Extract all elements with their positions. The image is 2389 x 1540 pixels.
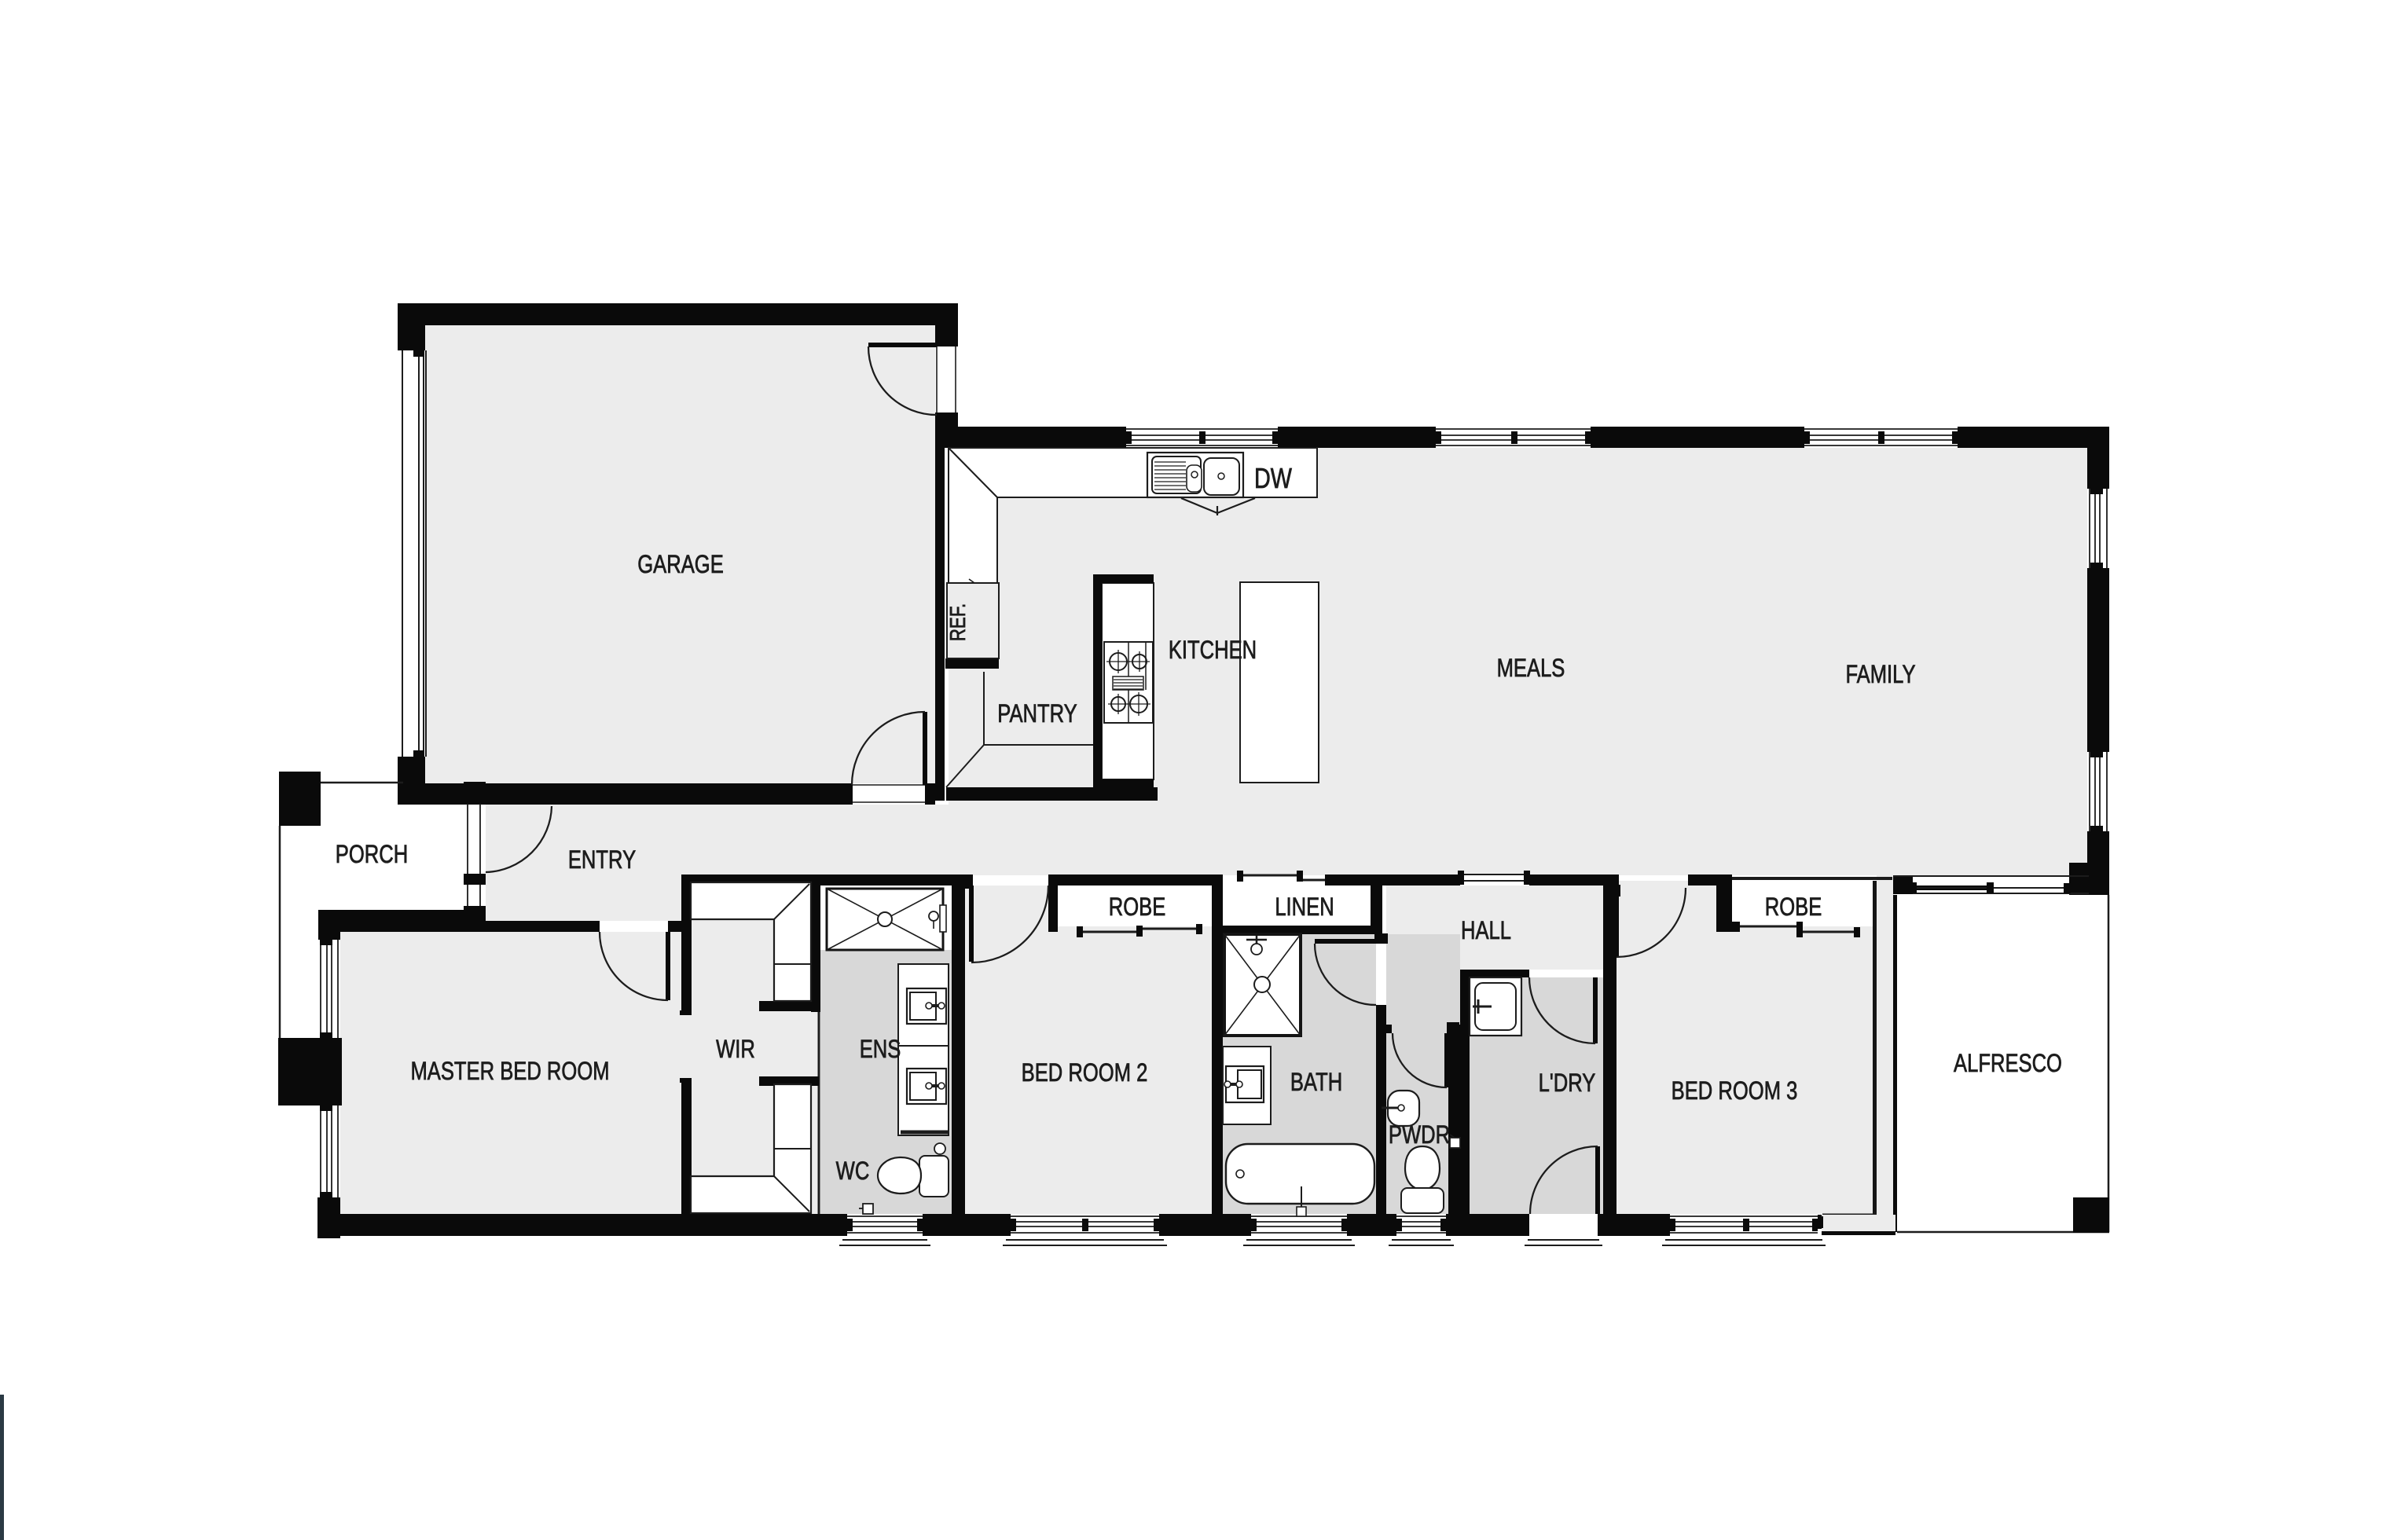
svg-text:ALFRESCO: ALFRESCO xyxy=(1954,1050,2062,1077)
svg-text:MEALS: MEALS xyxy=(1497,654,1565,682)
svg-text:PANTRY: PANTRY xyxy=(997,700,1077,728)
svg-text:ENTRY: ENTRY xyxy=(568,846,636,874)
svg-text:BED ROOM 3: BED ROOM 3 xyxy=(1672,1077,1798,1105)
svg-text:MASTER BED ROOM: MASTER BED ROOM xyxy=(410,1058,609,1085)
svg-text:BED ROOM 2: BED ROOM 2 xyxy=(1022,1059,1148,1087)
svg-text:ROBE: ROBE xyxy=(1765,893,1822,921)
svg-text:WC: WC xyxy=(836,1157,870,1185)
svg-text:BATH: BATH xyxy=(1290,1069,1342,1096)
svg-text:GARAGE: GARAGE xyxy=(637,551,724,578)
svg-text:ROBE: ROBE xyxy=(1109,893,1166,921)
svg-text:PORCH: PORCH xyxy=(336,841,408,868)
svg-text:L'DRY: L'DRY xyxy=(1539,1069,1596,1097)
svg-text:KITCHEN: KITCHEN xyxy=(1169,636,1257,664)
svg-text:FAMILY: FAMILY xyxy=(1845,661,1915,688)
svg-text:REF.: REF. xyxy=(946,603,971,642)
svg-text:PWDR: PWDR xyxy=(1389,1121,1450,1149)
svg-text:HALL: HALL xyxy=(1461,917,1511,944)
svg-text:LINEN: LINEN xyxy=(1275,893,1334,921)
svg-text:ENS: ENS xyxy=(860,1036,901,1063)
svg-text:DW: DW xyxy=(1254,462,1292,494)
svg-text:WIR: WIR xyxy=(716,1036,755,1063)
